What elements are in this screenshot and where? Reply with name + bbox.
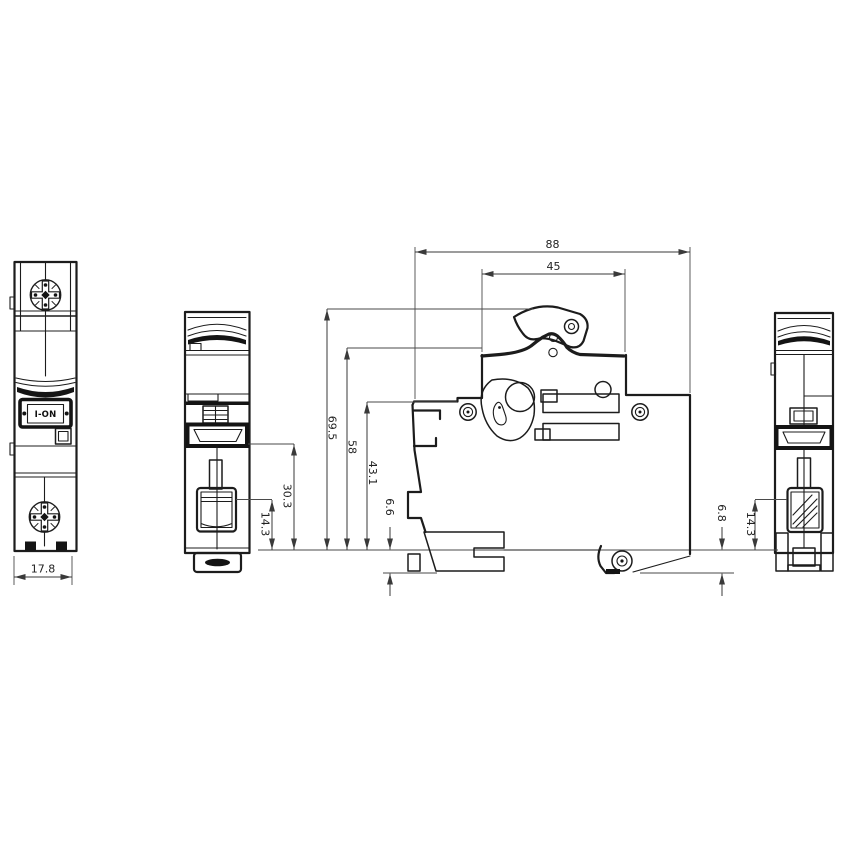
edge-view-right: 14.3: [742, 313, 833, 571]
dim-step-height-label: 43.1: [366, 461, 379, 486]
technical-drawing-canvas: I-ON 17.8: [0, 0, 850, 850]
front-foot-wedge: [424, 532, 504, 571]
top-screw-icon: [30, 280, 60, 310]
dim-unit-width-label: 17.8: [31, 563, 56, 576]
dim-upper-depth-label: 45: [547, 260, 561, 273]
dim-overall-height-label: 69.5: [326, 416, 339, 441]
dim-screw-height-right-label: 14.3: [744, 512, 757, 537]
terminal-opening: [188, 425, 248, 447]
dim-screw-height-right: 14.3: [742, 500, 787, 551]
rivet-right: [632, 404, 648, 420]
front-view: I-ON 17.8: [10, 262, 77, 585]
toggle-edge-shadow-right: [778, 336, 830, 345]
mechanism-pin: [595, 382, 611, 398]
toggle-handle: I-ON: [20, 400, 71, 428]
mcb-dimension-drawing: I-ON 17.8: [0, 0, 850, 850]
test-button: [56, 429, 72, 445]
din-rail-hook: [414, 411, 440, 447]
front-foot-block: [408, 554, 420, 571]
dim-front-clip-protrusion-label: 6.6: [383, 498, 396, 516]
dim-unit-width: 17.8: [14, 556, 72, 585]
busbar-slot-lower: [535, 424, 619, 441]
dim-terminal-height-label: 30.3: [281, 484, 294, 509]
case-top-edge: [482, 334, 624, 356]
toggle-label: I-ON: [35, 410, 57, 420]
dim-screw-height-label: 14.3: [259, 512, 272, 537]
toggle-recess-shadow: [17, 387, 74, 398]
terminal-screw-head-right: [788, 488, 823, 532]
dim-overall-depth-label: 88: [546, 238, 560, 251]
dim-case-height-label: 58: [346, 440, 359, 454]
bottom-screw-icon: [29, 502, 59, 532]
side-view: 88 45 6.8: [327, 238, 734, 596]
trip-cam: [481, 379, 534, 441]
terminal-opening-right: [777, 427, 832, 448]
rivet-left: [460, 404, 476, 420]
terminal-screw-shaft: [210, 460, 223, 489]
dim-rear-clip-protrusion-label: 6.8: [715, 504, 728, 522]
busbar-slot-upper: [541, 390, 619, 413]
clip-spring-lever: [633, 556, 690, 572]
toggle-lever: [514, 306, 588, 347]
edge-view-left: [185, 312, 294, 572]
